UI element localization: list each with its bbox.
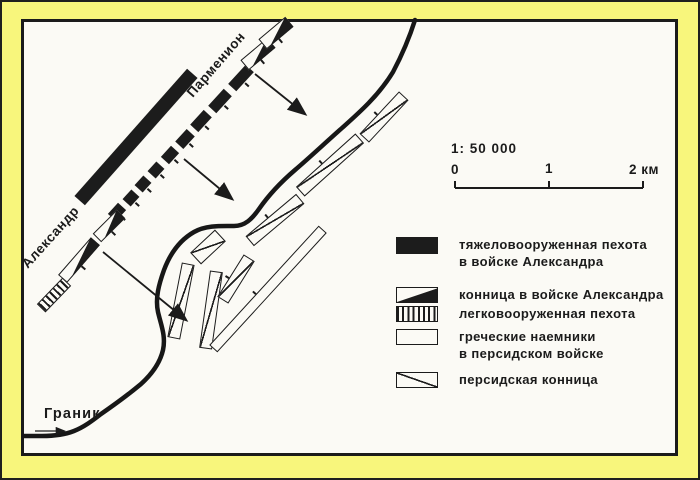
- attack-arrow-phalanx: [184, 159, 232, 199]
- legend-label-line: греческие наемники: [459, 328, 604, 345]
- scale-tick-2km: 2 км: [629, 162, 659, 177]
- legend-label-line: в персидском войске: [459, 345, 604, 362]
- legend-label-line: конница в войске Александра: [459, 286, 664, 303]
- legend-item-persian-cavalry: персидская конница: [396, 371, 598, 388]
- legend-symbol-macedonian-cavalry-icon: [396, 287, 438, 303]
- attack-arrow-alexander: [103, 252, 186, 320]
- label-river-granik: Граник: [44, 406, 101, 422]
- scale-bar: [455, 181, 643, 188]
- legend-symbol-light-infantry-icon: [396, 306, 438, 322]
- legend-symbol-heavy-infantry-icon: [396, 237, 438, 254]
- legend-item-macedonian-cavalry: конница в войске Александра: [396, 286, 664, 303]
- scale-tick-1: 1: [545, 161, 553, 176]
- scale-ratio: 1: 50 000: [451, 141, 517, 156]
- legend-item-heavy-infantry: тяжеловооруженная пехота в войске Алекса…: [396, 236, 647, 270]
- legend-label-line: легковооруженная пехота: [459, 305, 636, 322]
- scale-tick-0: 0: [451, 162, 459, 177]
- legend-label-line: тяжеловооруженная пехота: [459, 236, 647, 253]
- attack-arrow-parmenion: [255, 74, 305, 114]
- legend-item-light-infantry: легковооруженная пехота: [396, 305, 636, 322]
- legend-label-line: персидская конница: [459, 371, 598, 388]
- legend-item-greek-mercenaries: греческие наемники в персидском войске: [396, 328, 604, 362]
- battle-map-granicus: Парменион Александр Граник 1: 50 000 0 1…: [0, 0, 700, 480]
- legend-symbol-persian-cavalry-icon: [396, 372, 438, 388]
- legend-label-line: в войске Александра: [459, 253, 647, 270]
- legend-symbol-greek-mercenaries-icon: [396, 329, 438, 345]
